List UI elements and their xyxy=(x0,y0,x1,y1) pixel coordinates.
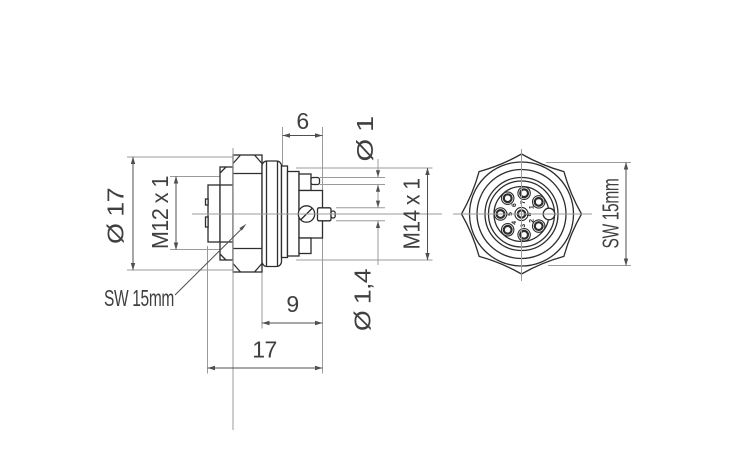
pin-6 xyxy=(502,192,514,204)
pin-label-4: 4 xyxy=(511,221,518,225)
leader-label-sw15mm: SW 15mm xyxy=(104,285,174,311)
dimension-label-dia17: Ø 17 xyxy=(103,188,129,244)
top-solder-pin xyxy=(311,178,320,185)
pin-7 xyxy=(518,187,530,199)
dimension-label-dia1: Ø 1 xyxy=(352,117,378,162)
side-view: Ø 17 M12 x 1 6 Ø 1 M14 x 1 9 Ø 1,4 17 SW… xyxy=(103,108,443,430)
rear-top-block xyxy=(299,174,311,191)
rear-bottom-block xyxy=(299,238,311,254)
connector-technical-drawing: Ø 17 M12 x 1 6 Ø 1 M14 x 1 9 Ø 1,4 17 SW… xyxy=(0,0,729,473)
dimension-label-len9: 9 xyxy=(286,291,298,317)
dimension-label-m12: M12 x 1 xyxy=(147,176,173,249)
dimension-label-sw15mm-front: SW 15mm xyxy=(598,179,624,249)
panel-plate xyxy=(282,166,288,258)
insert-contact-notch-top xyxy=(206,199,209,205)
drawing-svg: Ø 17 M12 x 1 6 Ø 1 M14 x 1 9 Ø 1,4 17 SW… xyxy=(0,0,729,473)
pin-3 xyxy=(518,229,530,241)
pin-label-2: 2 xyxy=(529,219,536,223)
dimension-label-m14: M14 x 1 xyxy=(399,179,425,250)
insert-contact-notch-bottom xyxy=(206,217,209,227)
front-view: 1 2 3 4 5 6 7 8 SW 15mm xyxy=(453,149,631,281)
dimension-label-len17: 17 xyxy=(252,337,277,363)
dimension-label-dia1-4: Ø 1,4 xyxy=(350,268,376,331)
pin-label-6: 6 xyxy=(511,203,518,207)
pin-label-1: 1 xyxy=(529,205,536,209)
dimension-label-len6: 6 xyxy=(296,108,308,134)
